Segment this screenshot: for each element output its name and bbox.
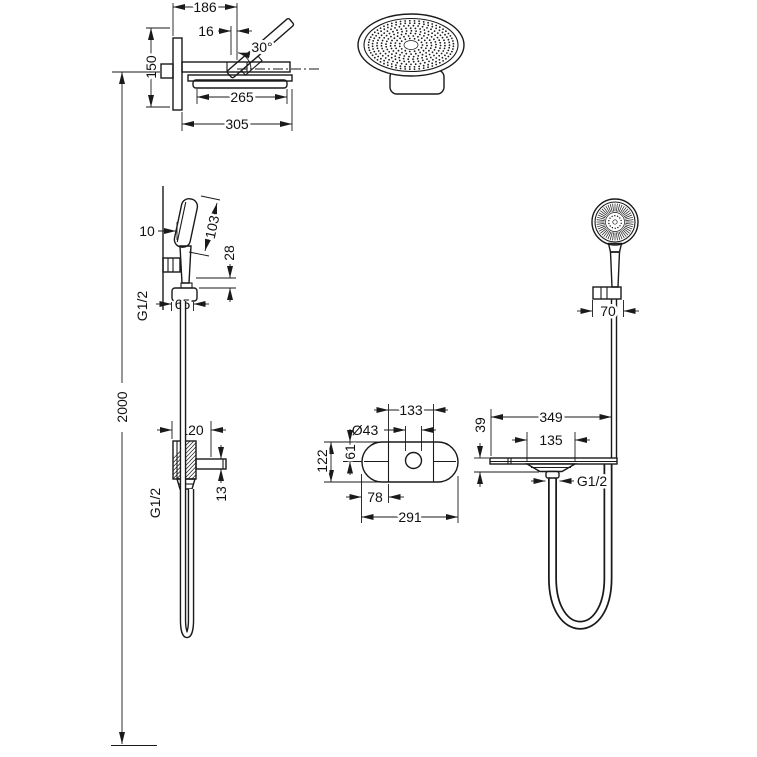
- dimension-28: 28: [196, 245, 237, 302]
- g12-wall-label: G1/2: [147, 488, 163, 519]
- dim-2000-label: 2000: [114, 391, 130, 422]
- dim-16-label: 16: [198, 23, 214, 39]
- slide-bar-shower-view: 70 349 39 135: [472, 199, 639, 625]
- overhead-shower-side-view: 186 16 30° 150 265 305: [143, 0, 322, 132]
- g12-hand-label: G1/2: [134, 291, 150, 322]
- dim-150-label: 150: [143, 55, 159, 79]
- dimension-10: 10: [139, 222, 177, 240]
- supply-stub: [161, 64, 173, 78]
- dim-103-label: 103: [202, 214, 223, 240]
- hand-shower-handle: [180, 246, 191, 283]
- g12-shelf-callout: G1/2: [531, 473, 607, 489]
- wall-plate: [173, 38, 182, 110]
- drawing-canvas: 186 16 30° 150 265 305: [0, 0, 757, 757]
- outlet-pipe: [196, 459, 226, 469]
- overall-height-dimension: 2000: [111, 72, 160, 746]
- dim-10-label: 10: [139, 223, 155, 239]
- control-plate-view: 133 Ø43 61 122 78: [314, 402, 458, 525]
- dim-61-label: 61: [342, 444, 358, 460]
- dimension-265: 265: [197, 89, 287, 105]
- dimension-135: 135: [512, 432, 590, 461]
- dim-43-label: Ø43: [352, 422, 379, 438]
- angle-30-label: 30°: [251, 39, 272, 55]
- dim-291-label: 291: [398, 509, 422, 525]
- dimension-150: 150: [143, 28, 170, 107]
- dimension-122: 122: [314, 442, 331, 482]
- dim-39-label: 39: [472, 417, 488, 433]
- dim-13-label: 13: [213, 486, 229, 502]
- shelf-hose-nut: [546, 472, 559, 479]
- dim-305-label: 305: [225, 116, 249, 132]
- dimension-70: 70: [577, 300, 639, 319]
- dimension-39: 39: [472, 417, 539, 487]
- dim-186-label: 186: [193, 0, 217, 15]
- spray-spokes: [597, 204, 634, 241]
- dimension-13: 13: [213, 445, 229, 502]
- head-face-outer: [358, 14, 464, 76]
- holder-bracket: [163, 258, 180, 272]
- dim-122-label: 122: [314, 449, 330, 473]
- hand-shower-holder-view: 10 103 28 G1/2 65: [134, 186, 237, 321]
- overhead-shower-face-view: [358, 14, 464, 94]
- dim-133-label: 133: [399, 402, 423, 418]
- g12-shelf-label: G1/2: [577, 473, 608, 489]
- dim-28-label: 28: [221, 245, 237, 261]
- dim-135-label: 135: [539, 432, 563, 448]
- dim-265-label: 265: [230, 89, 254, 105]
- dimension-133: 133: [374, 402, 448, 442]
- dim-78-label: 78: [367, 489, 383, 505]
- hose-fitting: [181, 283, 192, 288]
- shower-handle: [611, 252, 620, 287]
- dim-70-label: 70: [600, 303, 616, 319]
- dimension-16: 16: [198, 23, 252, 55]
- dim-349-label: 349: [539, 409, 563, 425]
- technical-drawing-page: 186 16 30° 150 265 305: [0, 0, 757, 757]
